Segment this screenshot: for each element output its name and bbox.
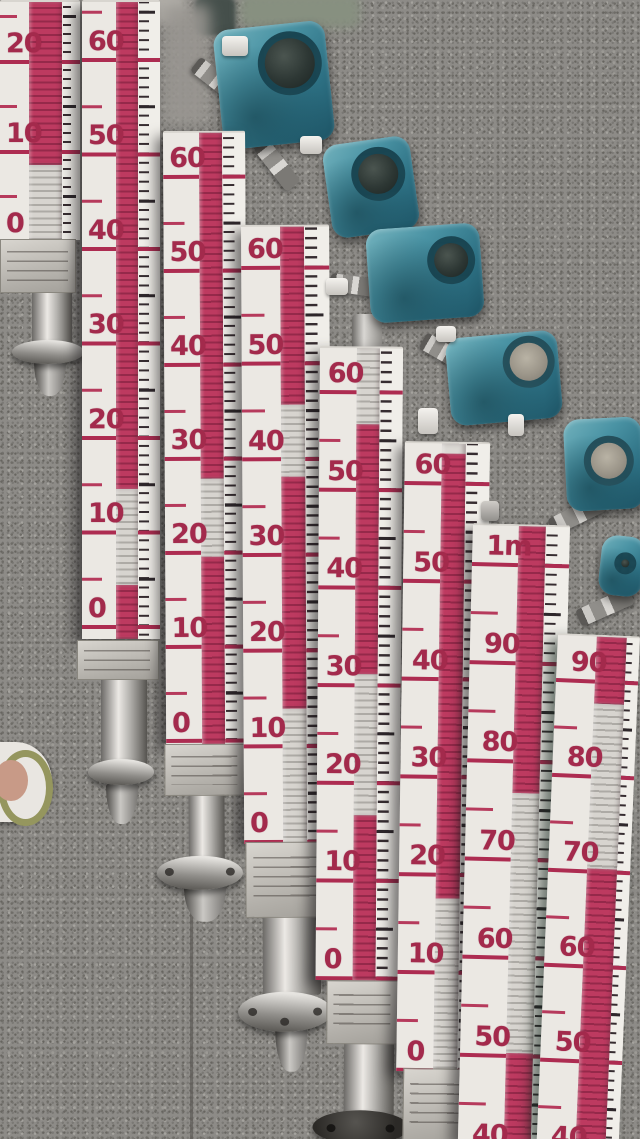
scale-label: 20 bbox=[171, 520, 207, 550]
scale-label: 40 bbox=[326, 554, 362, 584]
scale-label: 30 bbox=[326, 652, 362, 682]
vent-cap bbox=[481, 501, 499, 521]
scale-label: 80 bbox=[566, 742, 603, 773]
scale-label: 90 bbox=[570, 648, 607, 679]
scale-label: 10 bbox=[172, 614, 208, 644]
scale-label: 0 bbox=[172, 709, 190, 739]
transmitter-head-2 bbox=[321, 134, 421, 239]
scale-label: 10 bbox=[6, 119, 42, 149]
scale-label: 10 bbox=[324, 847, 360, 877]
vent-cap bbox=[436, 326, 456, 342]
flap-indicator-red bbox=[352, 815, 376, 980]
flap-indicator-red bbox=[280, 227, 306, 405]
transmitter-head-5 bbox=[563, 416, 640, 512]
flap-indicator-silver bbox=[282, 709, 307, 844]
flap-indicator-red bbox=[201, 557, 225, 745]
vent-cap bbox=[508, 414, 524, 436]
scale-label: 60 bbox=[558, 932, 595, 963]
scale-label: 10 bbox=[408, 939, 444, 969]
nameplate bbox=[77, 640, 159, 680]
transmitter-head-3 bbox=[365, 222, 485, 324]
vent-cap bbox=[222, 36, 248, 56]
drain-tip bbox=[106, 782, 138, 824]
sight-glass-icon bbox=[255, 28, 325, 98]
transmitter-head-6 bbox=[597, 534, 640, 598]
scale-label: 0 bbox=[250, 809, 268, 839]
tick-strip bbox=[62, 2, 80, 240]
scale-label: 60 bbox=[88, 27, 124, 57]
scale-label: 0 bbox=[6, 209, 24, 239]
scale-label: 40 bbox=[412, 646, 448, 676]
scale-label: 20 bbox=[409, 841, 445, 871]
scale-label: 10 bbox=[250, 714, 286, 744]
drain-pipe bbox=[263, 911, 321, 995]
gauge-column-1: 20 10 0 bbox=[0, 0, 80, 240]
flap-indicator-silver bbox=[281, 405, 306, 477]
sight-glass-icon bbox=[613, 551, 637, 575]
transmitter-head-4 bbox=[444, 329, 563, 426]
scale-label: 40 bbox=[248, 427, 284, 457]
scale-label: 60 bbox=[328, 359, 364, 389]
gauge-column-2: 60 50 40 30 20 10 0 bbox=[82, 0, 160, 639]
drain-flange bbox=[312, 1110, 408, 1139]
flap-indicator-red bbox=[116, 585, 138, 639]
flange-bolt bbox=[386, 1124, 395, 1132]
scale-label: 20 bbox=[249, 618, 285, 648]
vent-cap bbox=[418, 408, 438, 434]
flap-indicator-silver bbox=[434, 898, 460, 1071]
vent-cap bbox=[326, 278, 348, 295]
scale-label: 30 bbox=[88, 310, 124, 340]
sight-glass-icon bbox=[426, 235, 477, 286]
scale-label: 20 bbox=[325, 750, 361, 780]
scale-label: 20 bbox=[6, 29, 42, 59]
scale-label: 50 bbox=[413, 548, 449, 578]
tick-strip bbox=[138, 2, 160, 639]
sight-glass-icon bbox=[501, 334, 557, 390]
sight-glass-icon bbox=[348, 143, 409, 204]
gauge-column-5: 60 50 40 30 20 10 0 bbox=[316, 346, 403, 981]
gauge-column-3: 60 50 40 30 20 10 0 bbox=[163, 131, 248, 745]
scale-label: 70 bbox=[562, 837, 599, 868]
scale-label: 10 bbox=[88, 499, 124, 529]
scale-label: 50 bbox=[248, 331, 284, 361]
flange-bolt bbox=[248, 1008, 257, 1016]
foot-in-slipper bbox=[0, 742, 52, 822]
scale-label: 30 bbox=[410, 743, 446, 773]
flange-bolt bbox=[226, 868, 235, 876]
flange-bolt bbox=[280, 1018, 289, 1026]
scale-label: 0 bbox=[406, 1037, 424, 1067]
scale-label: 40 bbox=[88, 216, 124, 246]
drain-pipe bbox=[188, 792, 224, 862]
scale-label: 40 bbox=[170, 332, 206, 362]
nameplate bbox=[0, 239, 76, 293]
drain-flange bbox=[157, 856, 243, 890]
drain-pipe bbox=[101, 673, 147, 767]
drain-tip bbox=[275, 1026, 307, 1072]
scale-label: 80 bbox=[481, 727, 517, 758]
vent-cap bbox=[300, 136, 322, 154]
photo-of-magnetic-level-gauges: 20 10 0 60 50 40 30 20 10 0 bbox=[0, 0, 640, 1139]
scale-label: 60 bbox=[414, 450, 450, 480]
flange-bolt bbox=[313, 1008, 322, 1016]
flange-bolt bbox=[165, 868, 174, 876]
flap-indicator-silver bbox=[29, 165, 63, 240]
scale-label: 70 bbox=[479, 826, 515, 857]
scale-label: 30 bbox=[249, 522, 285, 552]
scale-label: 50 bbox=[554, 1027, 591, 1058]
scale-label: 60 bbox=[247, 235, 283, 265]
scale-label: 60 bbox=[169, 144, 205, 174]
nameplate bbox=[164, 744, 246, 796]
scale-label: 50 bbox=[327, 457, 363, 487]
flange-bolt bbox=[327, 1124, 336, 1132]
scale-label: 50 bbox=[474, 1022, 510, 1053]
scale-label: 1m bbox=[486, 531, 532, 562]
scale-label: 20 bbox=[88, 405, 124, 435]
drain-flange bbox=[238, 992, 332, 1032]
scale-label: 0 bbox=[88, 594, 106, 624]
scale-label: 50 bbox=[170, 238, 206, 268]
scale-label: 90 bbox=[484, 629, 520, 660]
drain-flange bbox=[12, 340, 84, 364]
flap-indicator-silver bbox=[353, 674, 377, 815]
scale-label: 40 bbox=[472, 1120, 508, 1139]
scale-label: 60 bbox=[476, 924, 512, 955]
scale-label: 50 bbox=[88, 121, 124, 151]
scale-label: 40 bbox=[550, 1122, 587, 1139]
sight-glass-icon bbox=[583, 434, 636, 487]
flap-indicator-red bbox=[281, 477, 307, 709]
drain-flange bbox=[88, 759, 154, 785]
scale-label: 30 bbox=[171, 426, 207, 456]
scale-label: 0 bbox=[324, 945, 342, 975]
nameplate bbox=[326, 980, 398, 1045]
